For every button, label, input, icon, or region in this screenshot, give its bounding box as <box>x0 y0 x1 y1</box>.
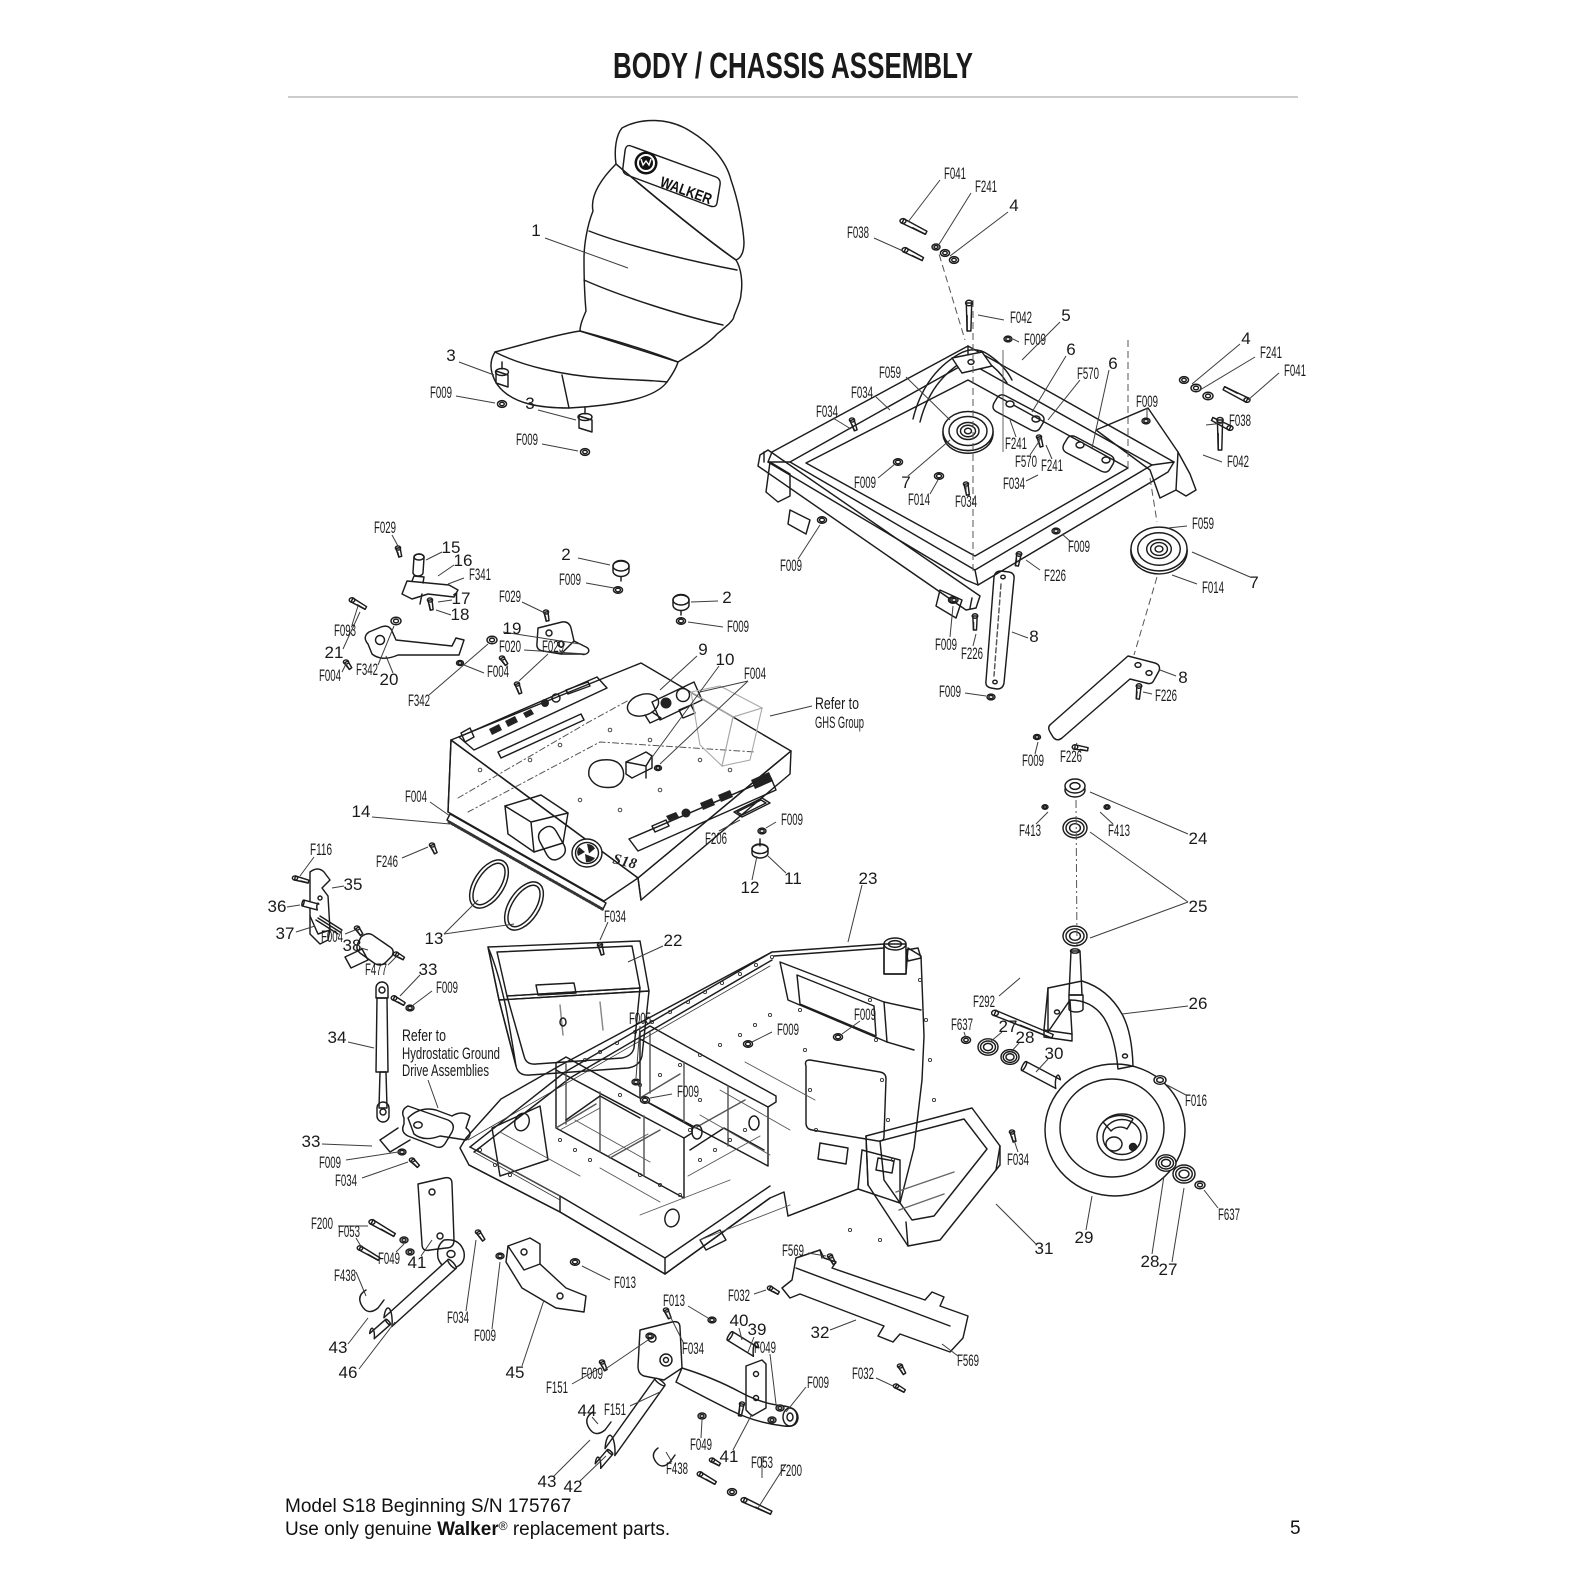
svg-text:F032: F032 <box>852 1364 874 1383</box>
svg-text:42: 42 <box>564 1477 583 1496</box>
svg-text:F029: F029 <box>542 637 564 656</box>
svg-text:F034: F034 <box>447 1308 469 1327</box>
svg-text:F049: F049 <box>690 1435 712 1454</box>
svg-text:33: 33 <box>419 960 438 979</box>
svg-text:F477: F477 <box>365 960 387 979</box>
svg-text:34: 34 <box>328 1028 347 1047</box>
svg-text:20: 20 <box>380 670 399 689</box>
svg-text:F049: F049 <box>378 1249 400 1268</box>
svg-text:22: 22 <box>664 931 683 950</box>
svg-text:8: 8 <box>1178 668 1187 687</box>
svg-text:29: 29 <box>1075 1228 1094 1247</box>
svg-text:28: 28 <box>1141 1252 1160 1271</box>
svg-text:21: 21 <box>325 643 344 662</box>
svg-text:F029: F029 <box>499 587 521 606</box>
svg-text:F059: F059 <box>879 363 901 382</box>
svg-text:F034: F034 <box>335 1171 357 1190</box>
svg-text:F004: F004 <box>487 662 509 681</box>
svg-text:F206: F206 <box>705 829 727 848</box>
svg-text:F438: F438 <box>666 1459 688 1478</box>
svg-text:F438: F438 <box>334 1266 356 1285</box>
svg-text:F009: F009 <box>727 617 749 636</box>
svg-text:18: 18 <box>451 605 470 624</box>
svg-text:F009: F009 <box>1022 751 1044 770</box>
svg-text:33: 33 <box>302 1132 321 1151</box>
svg-text:F009: F009 <box>436 978 458 997</box>
svg-text:F038: F038 <box>847 223 869 242</box>
svg-text:F016: F016 <box>1185 1091 1207 1110</box>
svg-text:39: 39 <box>748 1320 767 1339</box>
svg-text:3: 3 <box>525 394 534 413</box>
svg-text:F241: F241 <box>1260 343 1282 362</box>
svg-text:F241: F241 <box>975 177 997 196</box>
svg-text:5: 5 <box>1290 1518 1301 1539</box>
svg-text:12: 12 <box>741 878 760 897</box>
svg-text:F034: F034 <box>604 907 626 926</box>
svg-text:F292: F292 <box>973 992 995 1011</box>
svg-text:F034: F034 <box>955 492 977 511</box>
svg-text:19: 19 <box>503 619 522 638</box>
svg-text:43: 43 <box>329 1338 348 1357</box>
svg-text:F570: F570 <box>1015 452 1037 471</box>
svg-text:F342: F342 <box>356 660 378 679</box>
svg-text:F226: F226 <box>1060 747 1082 766</box>
svg-text:38: 38 <box>343 936 362 955</box>
svg-text:F041: F041 <box>1284 361 1306 380</box>
svg-text:9: 9 <box>698 640 707 659</box>
svg-text:F059: F059 <box>1192 514 1214 533</box>
svg-text:F241: F241 <box>1005 434 1027 453</box>
svg-text:F032: F032 <box>728 1286 750 1305</box>
svg-text:F053: F053 <box>751 1453 773 1472</box>
svg-text:2: 2 <box>722 588 731 607</box>
svg-text:F341: F341 <box>469 565 491 584</box>
svg-text:F042: F042 <box>1010 308 1032 327</box>
svg-text:F009: F009 <box>807 1373 829 1392</box>
svg-text:F009: F009 <box>935 635 957 654</box>
svg-text:28: 28 <box>1016 1028 1035 1047</box>
svg-text:31: 31 <box>1035 1239 1054 1258</box>
svg-text:F569: F569 <box>957 1351 979 1370</box>
svg-text:F034: F034 <box>682 1339 704 1358</box>
svg-text:F009: F009 <box>777 1020 799 1039</box>
svg-text:F009: F009 <box>1136 392 1158 411</box>
svg-text:F004: F004 <box>321 927 343 946</box>
svg-text:F226: F226 <box>1044 566 1066 585</box>
svg-text:F569: F569 <box>782 1241 804 1260</box>
svg-text:F226: F226 <box>1155 686 1177 705</box>
svg-text:F009: F009 <box>854 1005 876 1024</box>
svg-text:F226: F226 <box>961 644 983 663</box>
svg-text:13: 13 <box>425 929 444 948</box>
svg-text:32: 32 <box>811 1323 830 1342</box>
svg-text:GHS Group: GHS Group <box>815 713 864 732</box>
svg-text:37: 37 <box>276 924 295 943</box>
svg-text:Model S18 Beginning S/N 175767: Model S18 Beginning S/N 175767 <box>285 1496 571 1517</box>
svg-text:F241: F241 <box>1041 456 1063 475</box>
svg-text:6: 6 <box>1108 354 1117 373</box>
svg-text:F009: F009 <box>1068 537 1090 556</box>
svg-text:1: 1 <box>531 221 540 240</box>
svg-text:F034: F034 <box>816 402 838 421</box>
svg-text:F637: F637 <box>951 1015 973 1034</box>
svg-text:26: 26 <box>1189 994 1208 1013</box>
svg-text:F014: F014 <box>1202 578 1224 597</box>
svg-text:F151: F151 <box>546 1378 568 1397</box>
svg-text:F637: F637 <box>1218 1205 1240 1224</box>
svg-text:F151: F151 <box>604 1400 626 1419</box>
svg-text:43: 43 <box>538 1472 557 1491</box>
svg-text:4: 4 <box>1241 329 1250 348</box>
svg-text:30: 30 <box>1045 1044 1064 1063</box>
svg-text:F009: F009 <box>319 1153 341 1172</box>
svg-text:41: 41 <box>408 1253 427 1272</box>
svg-text:Refer to: Refer to <box>815 694 859 713</box>
svg-text:F005: F005 <box>629 1009 651 1028</box>
svg-text:F570: F570 <box>1077 364 1099 383</box>
svg-text:F200: F200 <box>311 1214 333 1233</box>
svg-text:F009: F009 <box>1024 330 1046 349</box>
svg-text:F034: F034 <box>851 383 873 402</box>
svg-text:Drive Assemblies: Drive Assemblies <box>402 1061 489 1080</box>
svg-text:45: 45 <box>506 1363 525 1382</box>
svg-text:F034: F034 <box>1003 474 1025 493</box>
svg-text:8: 8 <box>1029 627 1038 646</box>
svg-text:F038: F038 <box>1229 411 1251 430</box>
svg-text:F413: F413 <box>1108 821 1130 840</box>
svg-text:5: 5 <box>1061 306 1070 325</box>
svg-text:Refer to: Refer to <box>402 1026 446 1045</box>
svg-text:3: 3 <box>446 346 455 365</box>
svg-text:F342: F342 <box>408 691 430 710</box>
svg-text:7: 7 <box>1249 573 1258 592</box>
svg-text:24: 24 <box>1189 829 1208 848</box>
svg-text:F009: F009 <box>781 810 803 829</box>
svg-text:2: 2 <box>561 545 570 564</box>
svg-text:F004: F004 <box>405 787 427 806</box>
svg-text:F041: F041 <box>944 164 966 183</box>
svg-text:F042: F042 <box>1227 452 1249 471</box>
svg-text:F009: F009 <box>854 473 876 492</box>
svg-text:F034: F034 <box>1007 1150 1029 1169</box>
svg-text:F020: F020 <box>499 637 521 656</box>
svg-text:F009: F009 <box>474 1326 496 1345</box>
svg-text:F093: F093 <box>334 621 356 640</box>
svg-text:14: 14 <box>352 802 371 821</box>
svg-text:F200: F200 <box>780 1461 802 1480</box>
svg-text:F116: F116 <box>310 840 332 859</box>
svg-text:F049: F049 <box>754 1338 776 1357</box>
svg-text:F013: F013 <box>663 1291 685 1310</box>
svg-text:4: 4 <box>1009 196 1018 215</box>
svg-text:F009: F009 <box>677 1082 699 1101</box>
svg-text:F004: F004 <box>319 666 341 685</box>
svg-text:F029: F029 <box>374 518 396 537</box>
svg-text:F009: F009 <box>559 570 581 589</box>
svg-text:F009: F009 <box>939 682 961 701</box>
svg-text:36: 36 <box>268 897 287 916</box>
svg-text:44: 44 <box>578 1401 597 1420</box>
svg-text:F004: F004 <box>744 664 766 683</box>
svg-text:6: 6 <box>1066 340 1075 359</box>
svg-text:F009: F009 <box>516 430 538 449</box>
svg-text:46: 46 <box>339 1363 358 1382</box>
svg-text:40: 40 <box>730 1311 749 1330</box>
svg-text:23: 23 <box>859 869 878 888</box>
svg-text:35: 35 <box>344 875 363 894</box>
svg-text:BODY / CHASSIS ASSEMBLY: BODY / CHASSIS ASSEMBLY <box>613 45 973 86</box>
svg-text:25: 25 <box>1189 897 1208 916</box>
svg-text:F009: F009 <box>780 556 802 575</box>
svg-text:11: 11 <box>784 869 802 888</box>
svg-text:F053: F053 <box>338 1222 360 1241</box>
svg-text:F246: F246 <box>376 852 398 871</box>
svg-text:27: 27 <box>1159 1260 1178 1279</box>
svg-text:F013: F013 <box>614 1273 636 1292</box>
svg-text:F009: F009 <box>430 383 452 402</box>
svg-text:F413: F413 <box>1019 821 1041 840</box>
svg-text:F014: F014 <box>908 490 930 509</box>
svg-text:Use only genuine Walker® repla: Use only genuine Walker® replacement par… <box>285 1519 670 1540</box>
svg-text:F009: F009 <box>581 1364 603 1383</box>
svg-text:10: 10 <box>716 650 735 669</box>
svg-text:41: 41 <box>720 1447 739 1466</box>
